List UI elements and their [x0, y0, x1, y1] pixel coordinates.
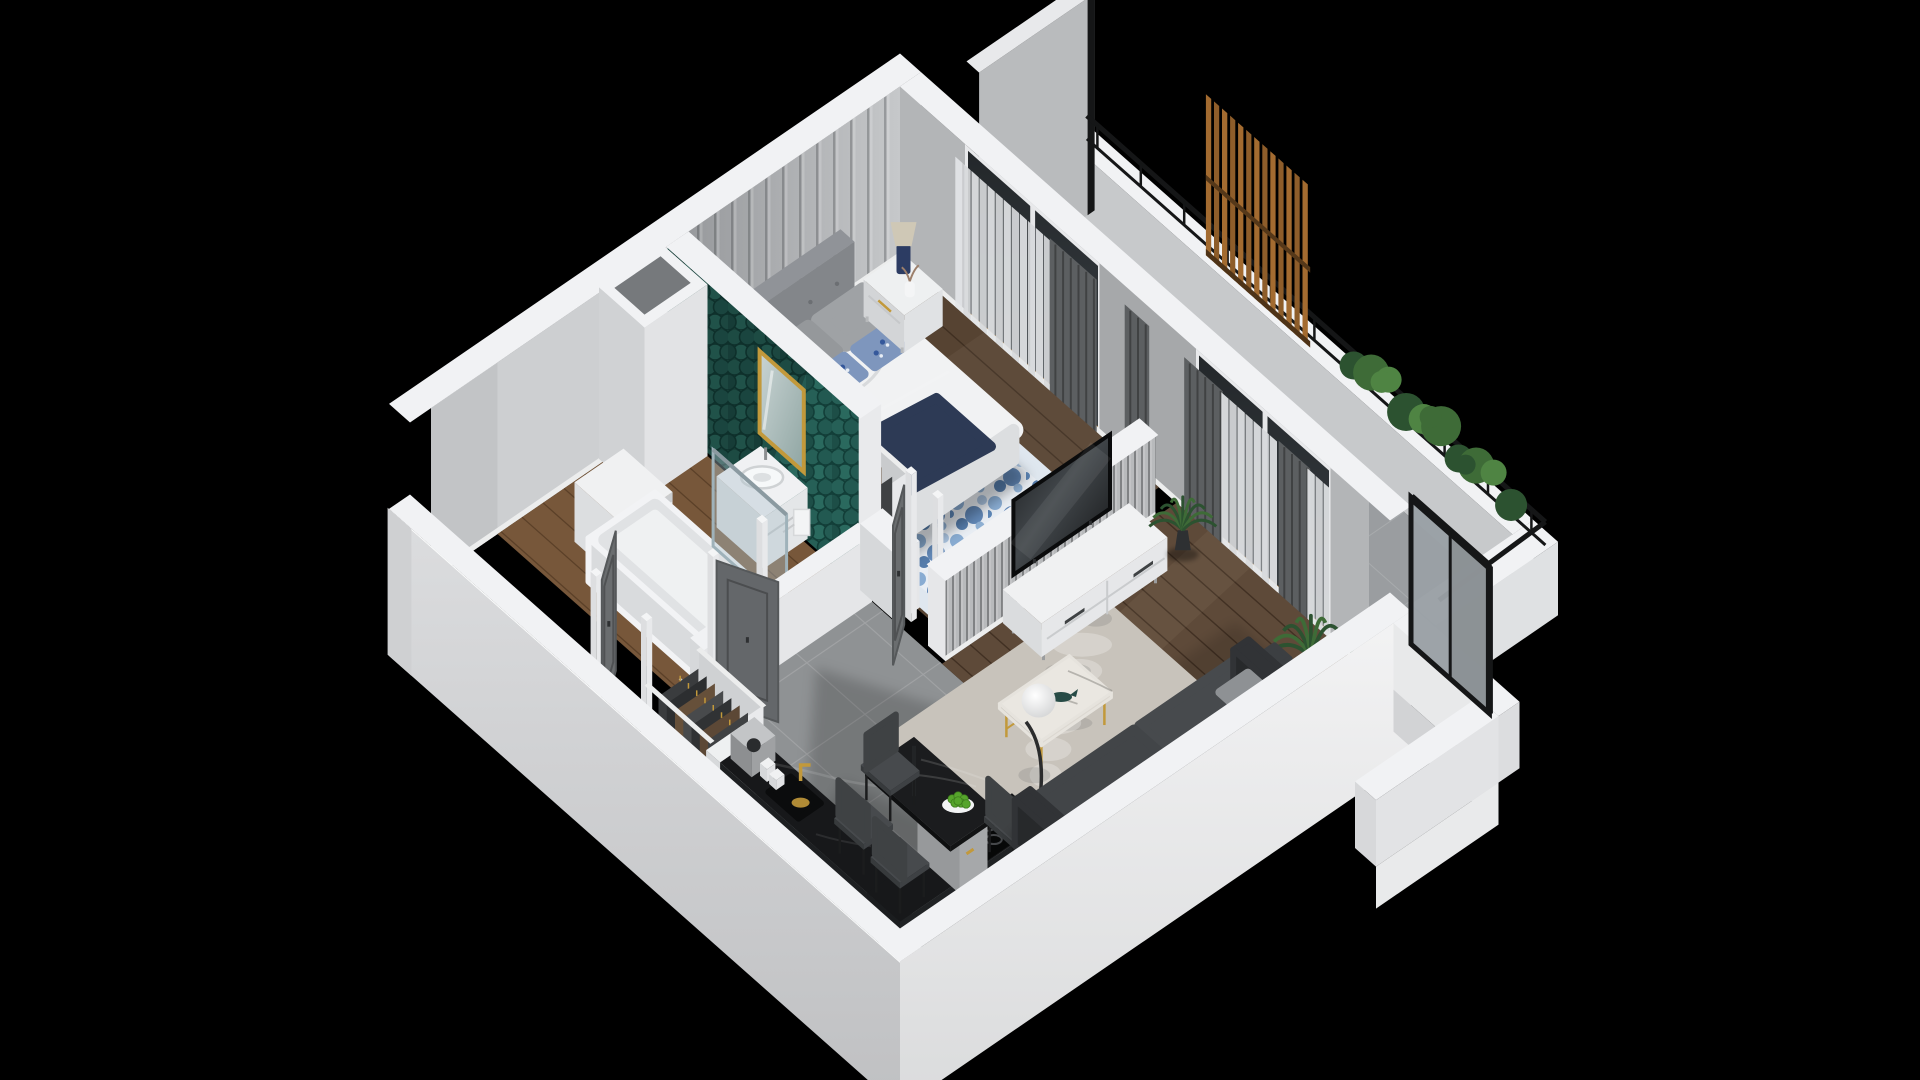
floorplan-canvas — [0, 0, 1920, 1080]
apartment-3d-render — [0, 0, 1920, 1080]
